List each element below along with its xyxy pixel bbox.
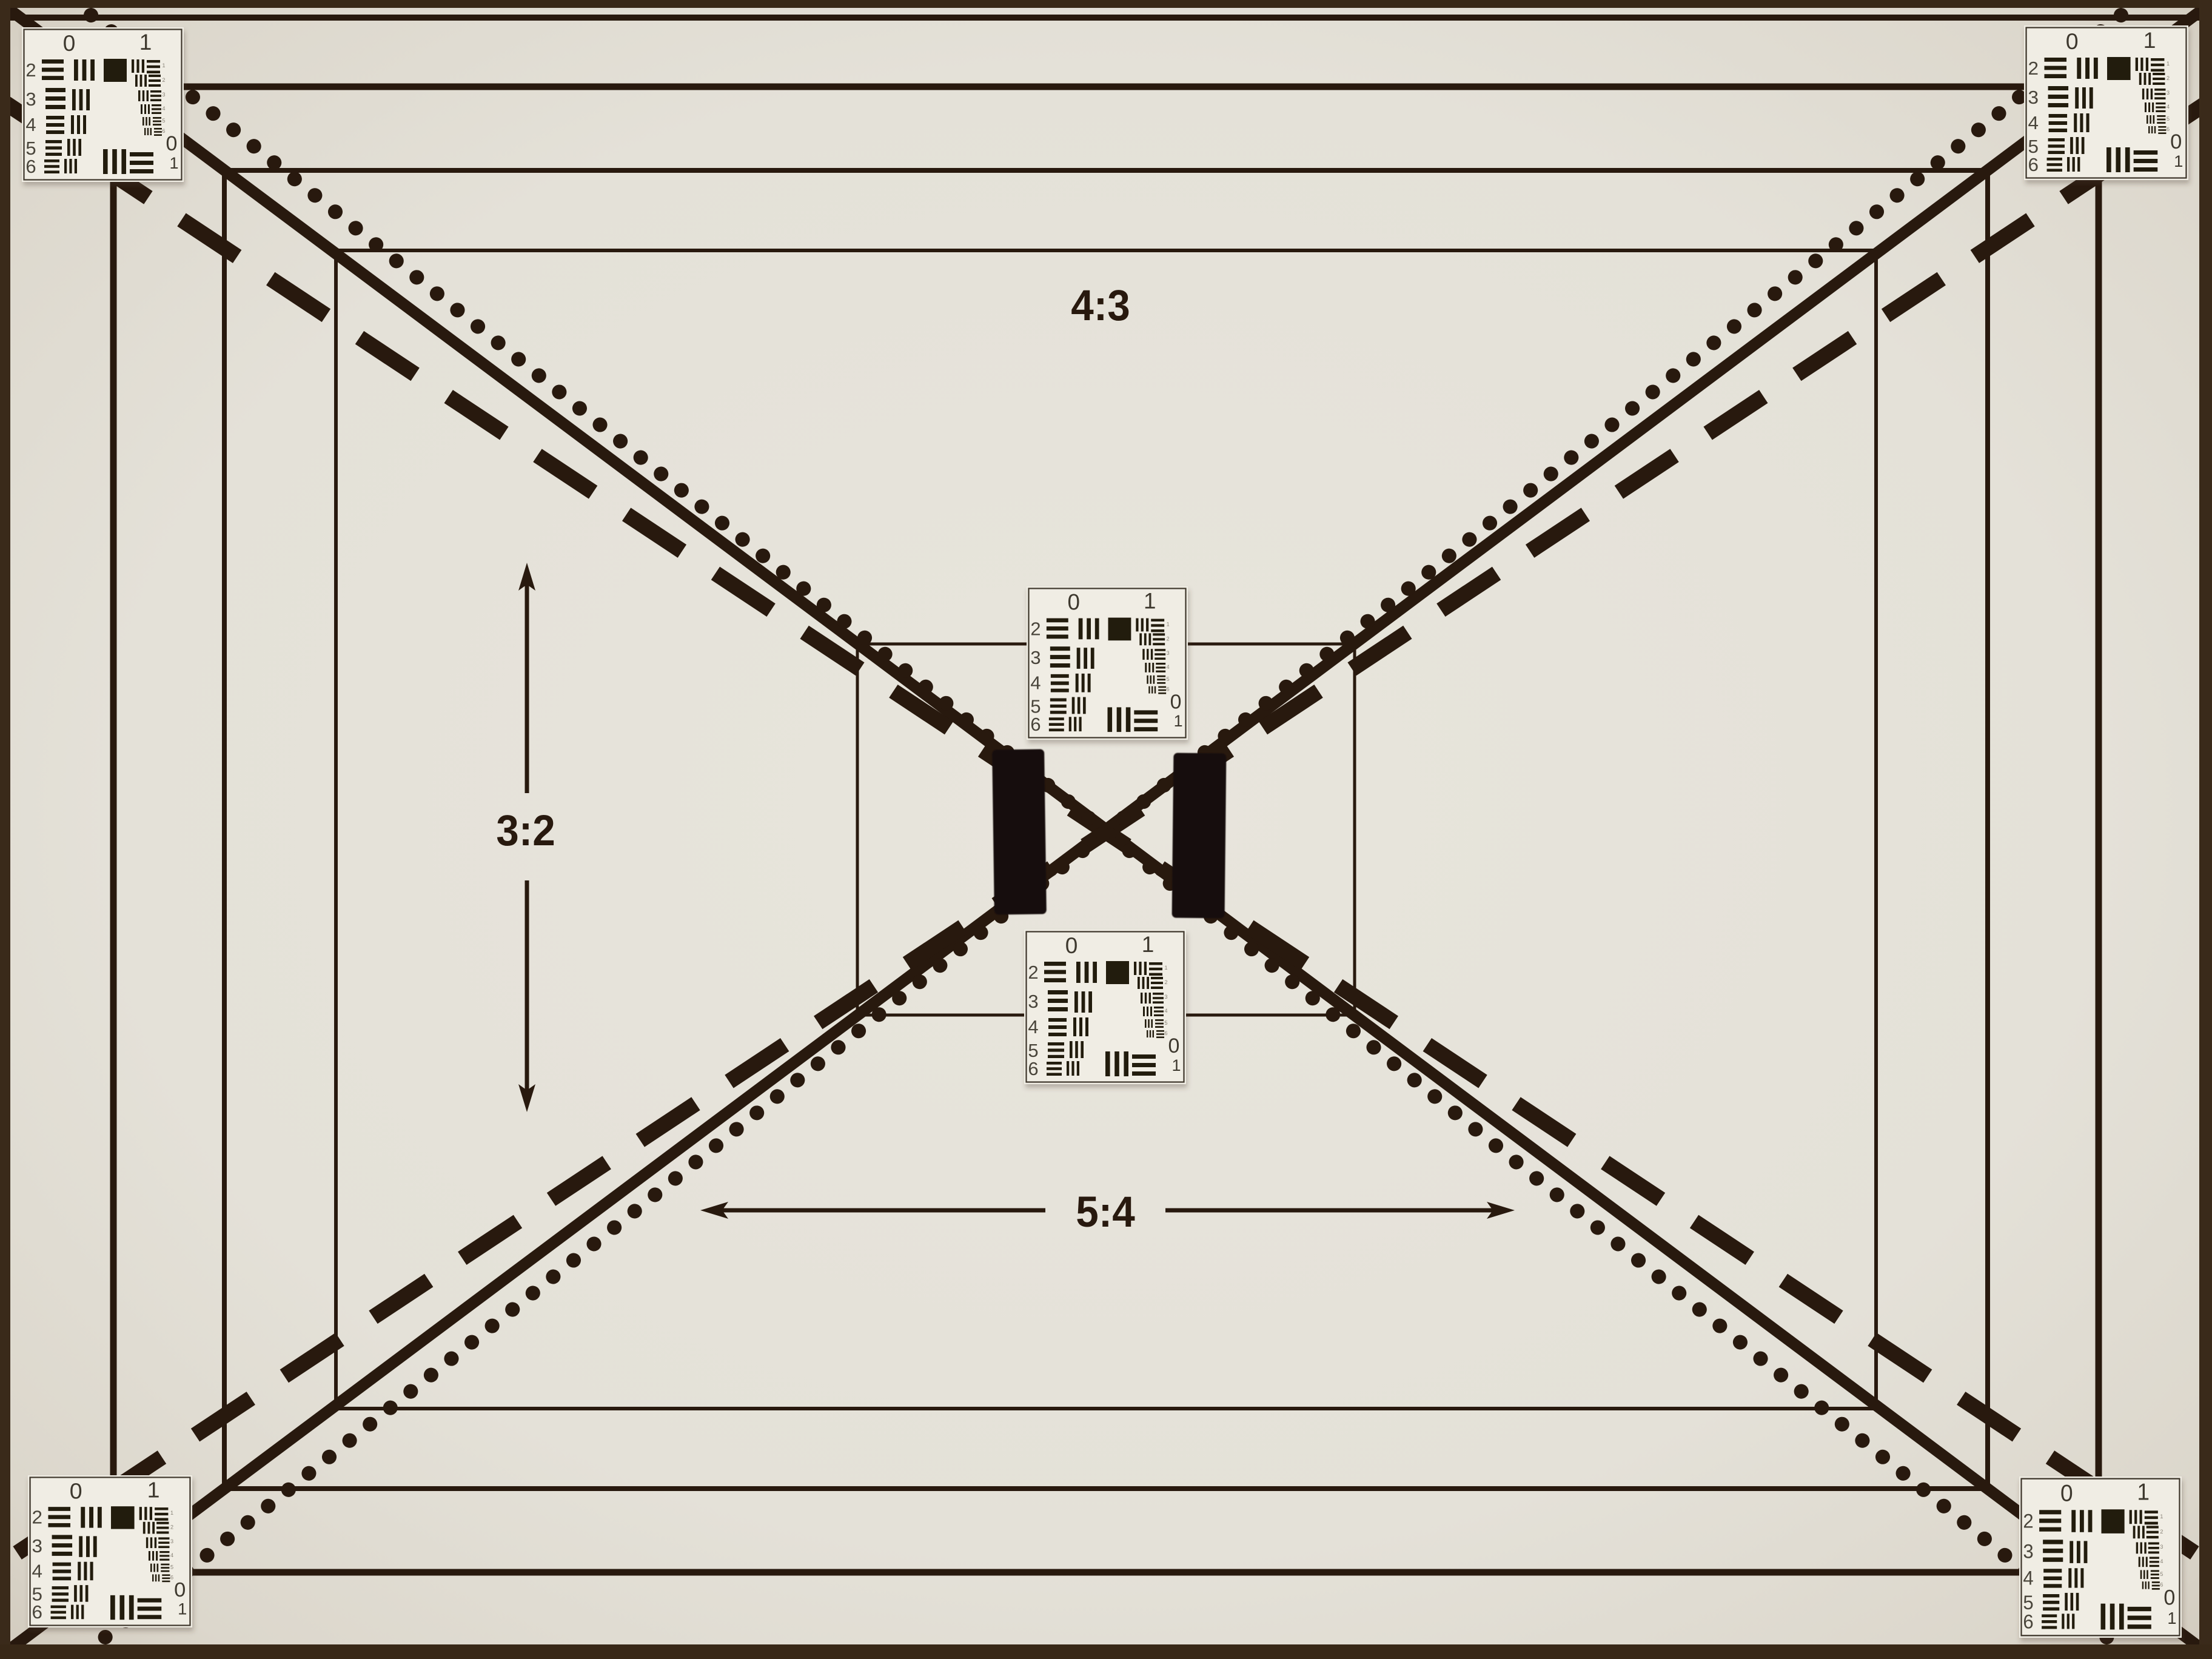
- svg-text:3:2: 3:2: [496, 806, 555, 854]
- svg-text:5:4: 5:4: [1076, 1187, 1135, 1236]
- svg-text:4:3: 4:3: [1071, 281, 1130, 329]
